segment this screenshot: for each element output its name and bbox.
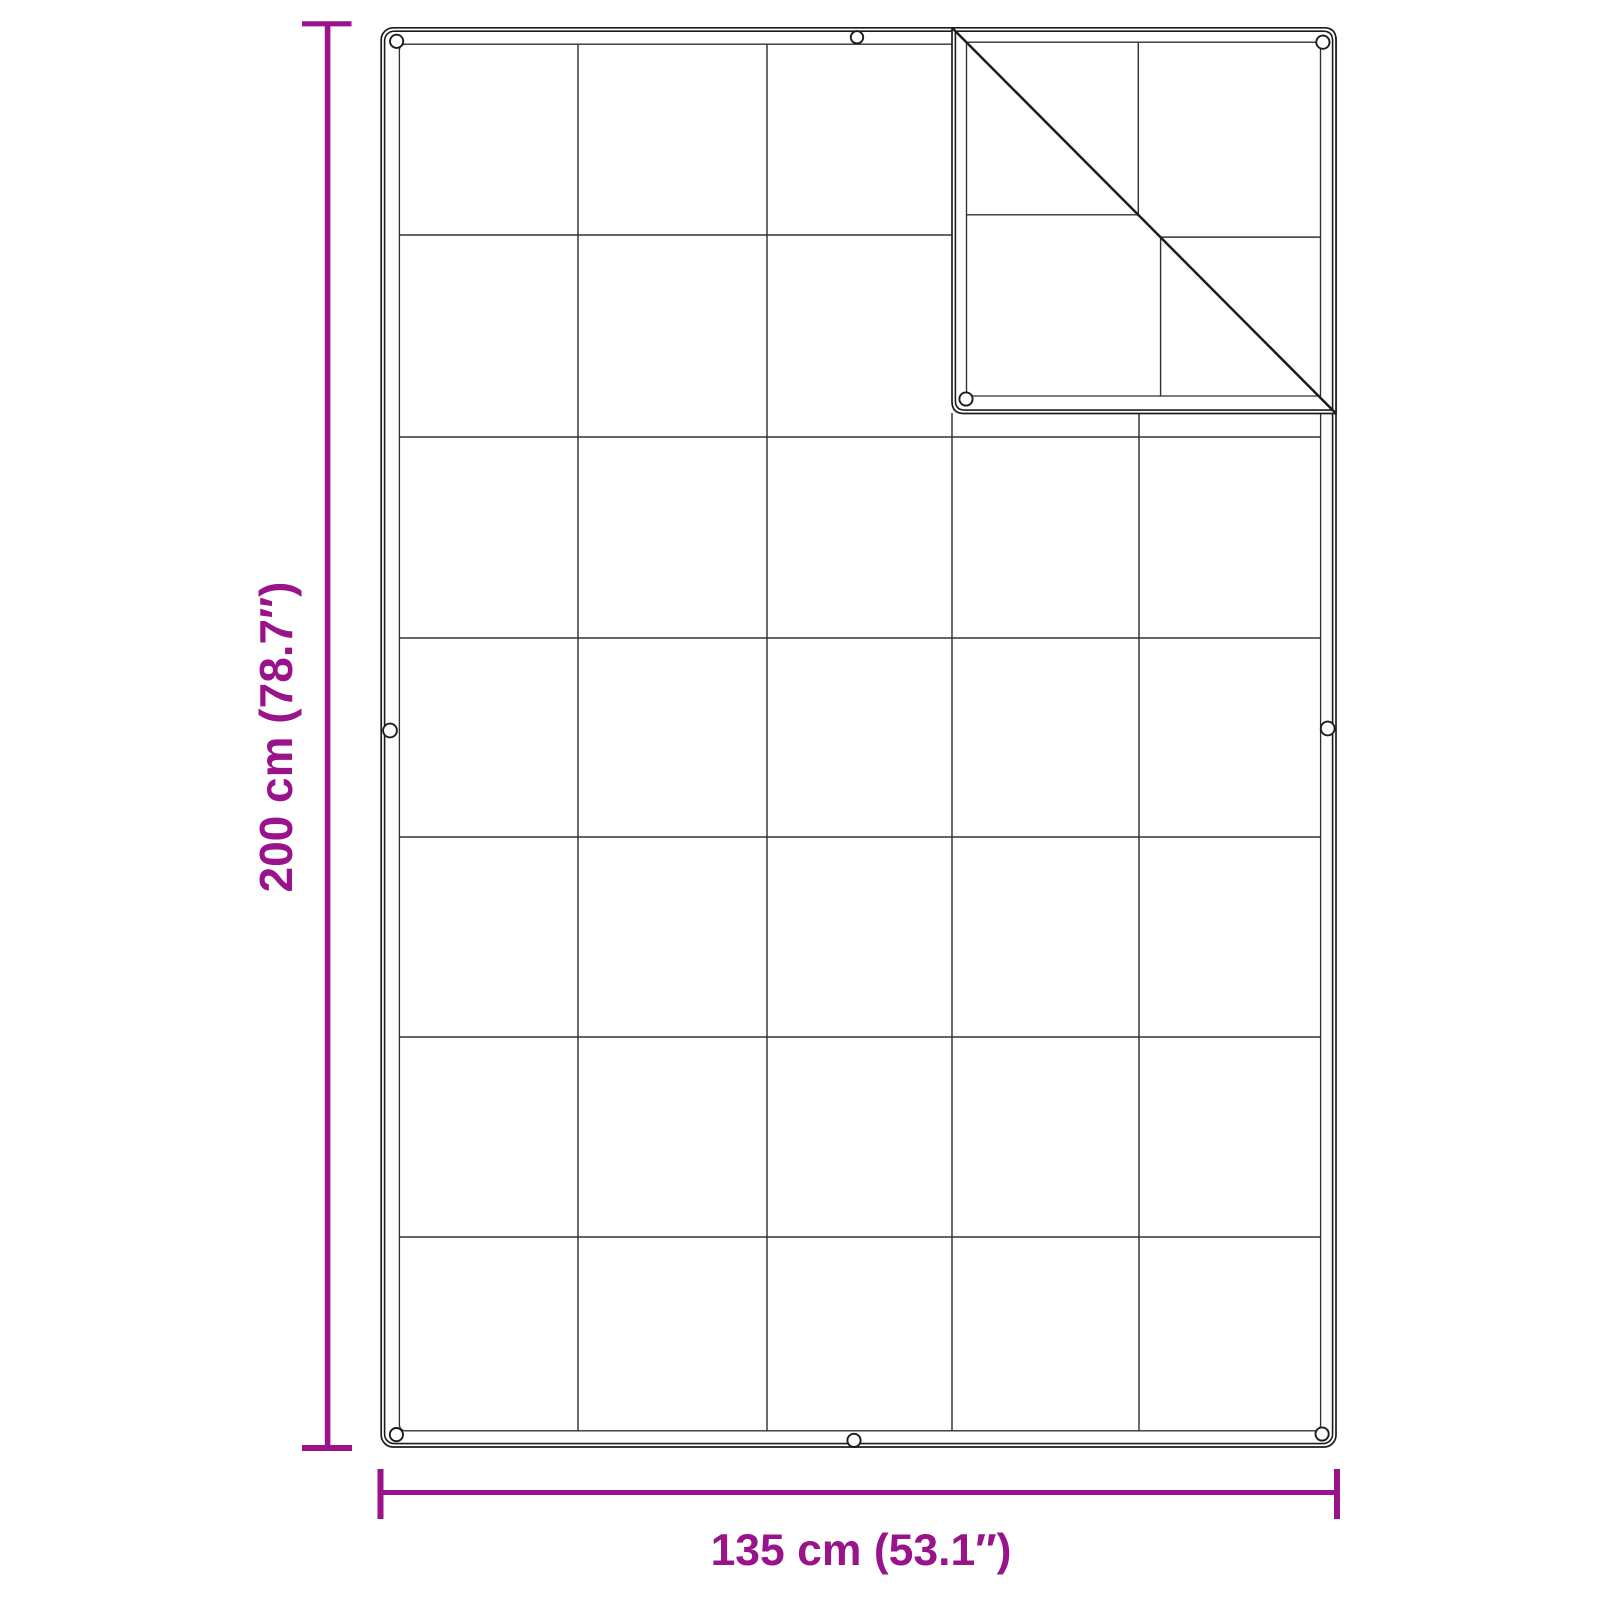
svg-text:135 cm (53.1″): 135 cm (53.1″) <box>711 1526 1012 1575</box>
svg-text:200 cm (78.7″): 200 cm (78.7″) <box>250 582 302 893</box>
